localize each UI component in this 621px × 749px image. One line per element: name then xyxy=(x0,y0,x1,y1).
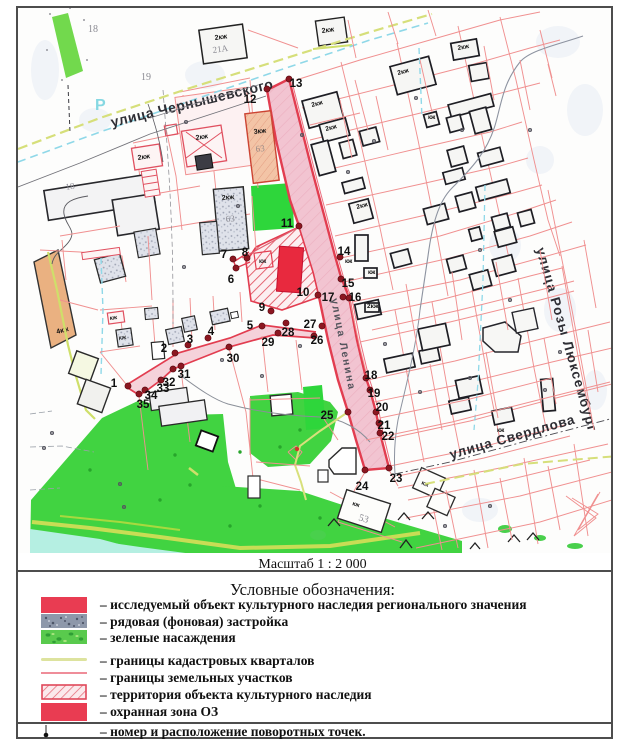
svg-text:Р: Р xyxy=(95,97,106,114)
svg-text:кж: кж xyxy=(428,115,436,121)
svg-text:19: 19 xyxy=(368,388,381,400)
svg-text:27: 27 xyxy=(304,319,317,331)
svg-text:23: 23 xyxy=(390,473,403,485)
svg-text:20: 20 xyxy=(376,402,389,414)
svg-text:16: 16 xyxy=(349,292,362,304)
svg-text:10: 10 xyxy=(297,287,310,299)
svg-text:35: 35 xyxy=(137,399,150,411)
svg-text:4: 4 xyxy=(208,326,215,338)
svg-text:26: 26 xyxy=(311,335,324,347)
svg-text:18: 18 xyxy=(88,24,98,35)
svg-text:2кж: 2кж xyxy=(222,194,236,202)
svg-text:63: 63 xyxy=(255,143,266,154)
svg-text:КЖ: КЖ xyxy=(118,335,127,342)
svg-text:29: 29 xyxy=(262,337,275,349)
svg-text:1: 1 xyxy=(111,378,118,390)
svg-text:17: 17 xyxy=(322,292,335,304)
svg-text:12: 12 xyxy=(244,94,257,106)
svg-text:11: 11 xyxy=(281,218,294,230)
svg-text:24: 24 xyxy=(356,481,369,493)
svg-text:25: 25 xyxy=(321,410,334,422)
svg-text:2кж: 2кж xyxy=(367,303,379,310)
svg-text:7: 7 xyxy=(221,249,227,261)
svg-text:6: 6 xyxy=(228,274,234,286)
svg-text:19: 19 xyxy=(141,72,151,83)
svg-text:15: 15 xyxy=(342,278,355,290)
svg-text:22: 22 xyxy=(382,431,395,443)
svg-text:2: 2 xyxy=(161,343,167,355)
svg-text:9: 9 xyxy=(259,302,265,314)
svg-text:30: 30 xyxy=(227,353,240,365)
svg-text:28: 28 xyxy=(282,327,295,339)
svg-text:14: 14 xyxy=(338,246,351,258)
svg-text:13: 13 xyxy=(290,78,303,90)
svg-text:33: 33 xyxy=(157,383,170,395)
svg-text:5: 5 xyxy=(247,320,254,332)
svg-text:3: 3 xyxy=(187,334,193,346)
svg-text:8: 8 xyxy=(242,247,249,259)
svg-text:кж: кж xyxy=(259,259,267,265)
svg-text:63: 63 xyxy=(225,213,235,224)
svg-text:31: 31 xyxy=(178,369,191,381)
svg-text:18: 18 xyxy=(365,370,378,382)
svg-text:кж: кж xyxy=(368,270,376,276)
svg-text:кж: кж xyxy=(345,259,353,265)
